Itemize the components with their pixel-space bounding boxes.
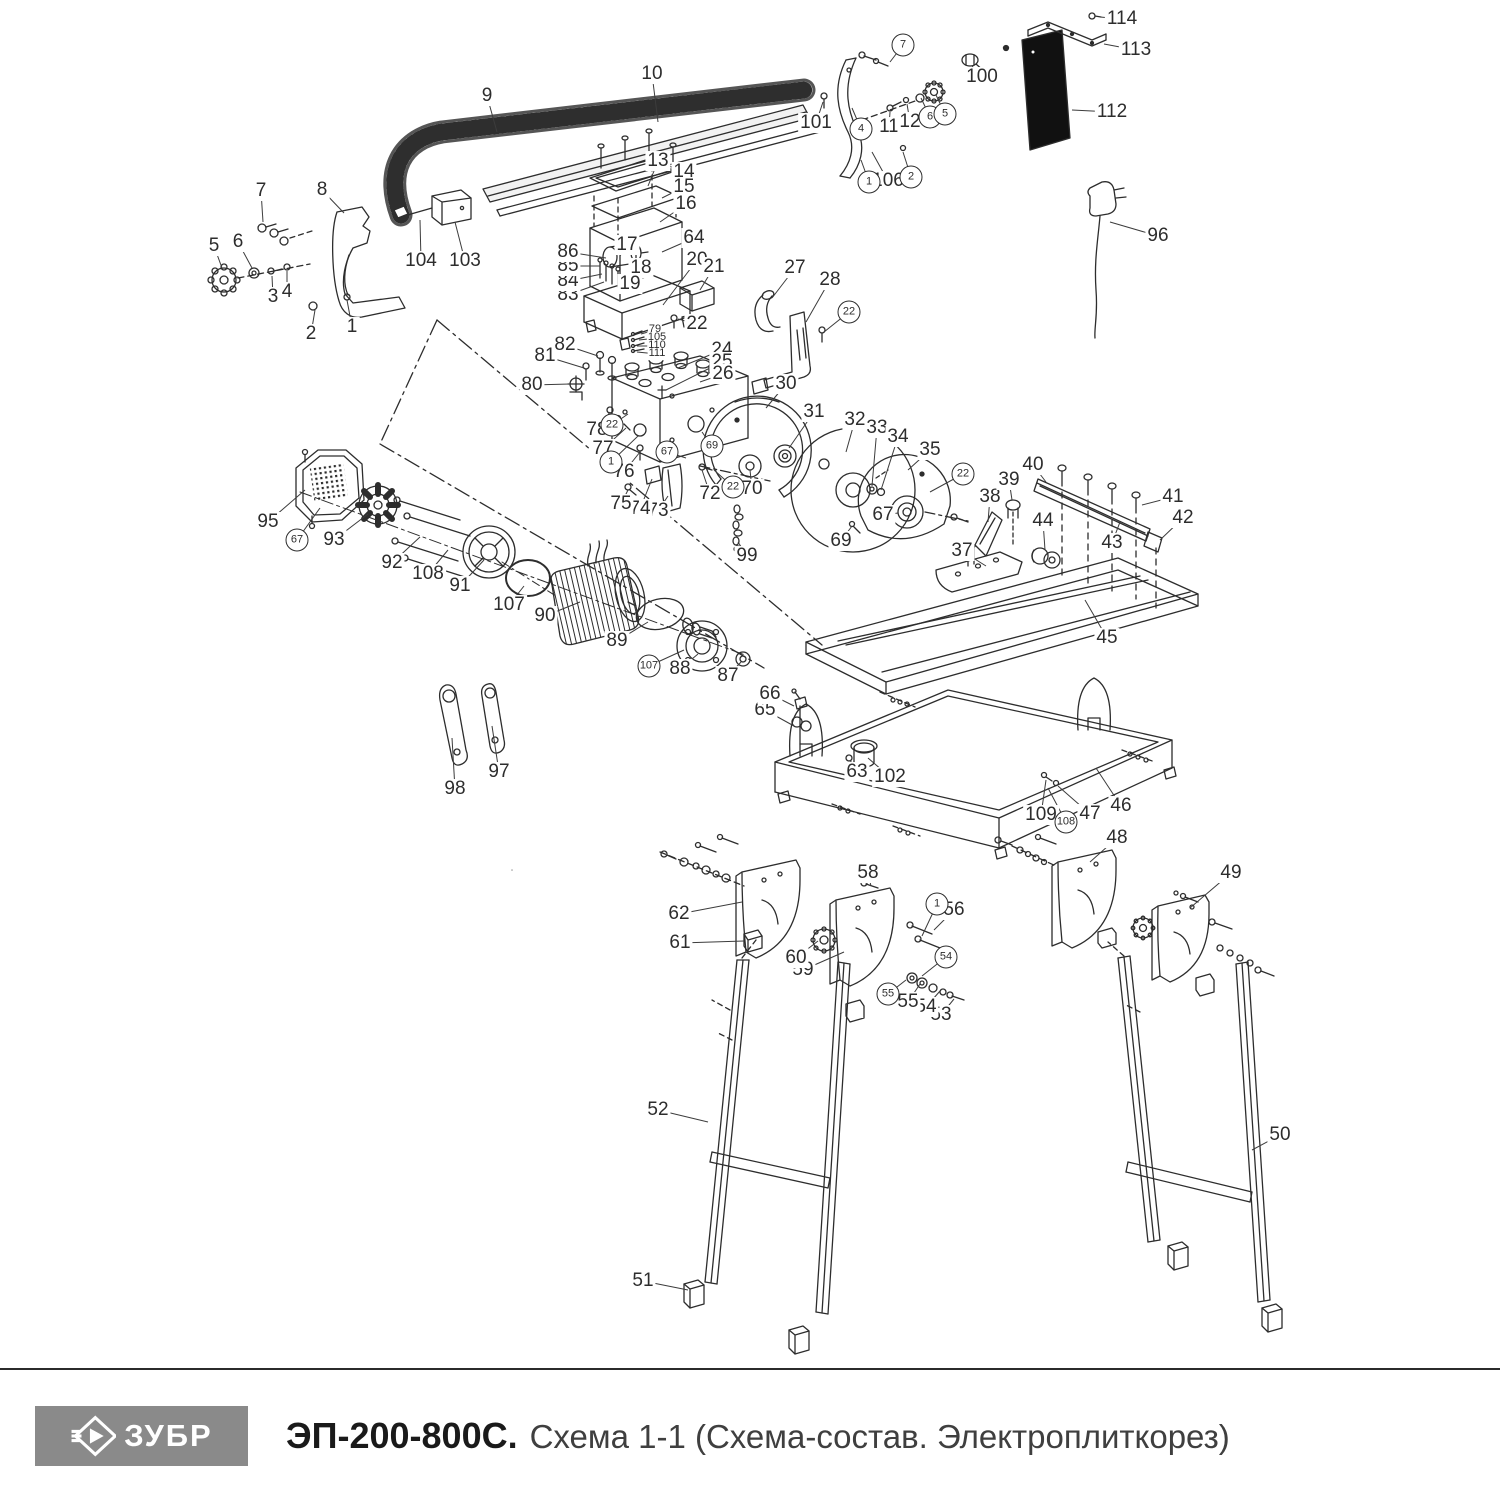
part-label-26: 26: [710, 364, 735, 384]
part-label-58: 58: [855, 863, 880, 883]
footer: ЗУБР ЭП-200-800С. Схема 1-1 (Схема-соста…: [0, 1368, 1500, 1500]
part-label-54: 54: [935, 946, 958, 969]
part-label-67: 67: [656, 441, 679, 464]
part-label-66: 66: [757, 684, 782, 704]
part-label-102: 102: [872, 767, 908, 787]
part-label-88: 88: [667, 659, 692, 679]
part-label-62: 62: [666, 904, 691, 924]
part-label-82: 82: [552, 335, 577, 355]
part-label-112: 112: [1095, 102, 1129, 122]
part-label-19: 19: [617, 274, 642, 294]
brand-arrow-icon: [70, 1413, 116, 1459]
part-label-108: 108: [410, 564, 446, 584]
part-label-89: 89: [604, 631, 629, 651]
part-label-22: 22: [684, 314, 709, 334]
part-label-90: 90: [532, 606, 557, 626]
part-label-69: 69: [701, 435, 724, 458]
part-label-107: 107: [491, 595, 527, 615]
model-title: ЭП-200-800С.: [286, 1415, 518, 1457]
part-label-1: 1: [600, 451, 623, 474]
part-label-17: 17: [614, 235, 639, 255]
part-label-113: 113: [1119, 40, 1153, 60]
part-label-40: 40: [1020, 455, 1045, 475]
part-label-44: 44: [1030, 511, 1055, 531]
part-label-86: 86: [555, 242, 580, 262]
part-label-6: 6: [231, 232, 246, 252]
part-label-46: 46: [1108, 796, 1133, 816]
part-label-51: 51: [630, 1271, 655, 1291]
part-label-100: 100: [964, 67, 1000, 87]
part-label-35: 35: [917, 440, 942, 460]
part-label-41: 41: [1160, 487, 1185, 507]
part-label-75: 75: [608, 494, 633, 514]
part-label-27: 27: [782, 258, 807, 278]
part-label-22: 22: [722, 476, 745, 499]
part-label-21: 21: [701, 257, 726, 277]
part-label-9: 9: [480, 86, 495, 106]
document-title: ЭП-200-800С. Схема 1-1 (Схема-состав. Эл…: [286, 1415, 1230, 1457]
part-label-55: 55: [877, 983, 900, 1006]
part-label-49: 49: [1218, 863, 1243, 883]
part-label-4: 4: [850, 118, 873, 141]
part-label-111: 111: [648, 348, 667, 360]
part-label-60: 60: [783, 948, 808, 968]
part-label-96: 96: [1145, 226, 1170, 246]
part-label-1: 1: [926, 893, 949, 916]
part-label-61: 61: [667, 933, 692, 953]
part-label-48: 48: [1104, 828, 1129, 848]
part-label-108: 108: [1055, 811, 1078, 834]
part-label-7: 7: [892, 34, 915, 57]
part-label-16: 16: [673, 194, 698, 214]
part-label-5: 5: [934, 103, 957, 126]
part-label-67: 67: [286, 529, 309, 552]
part-label-2: 2: [900, 166, 923, 189]
part-labels-layer: 1234567891011121314151617181920212224252…: [0, 0, 1500, 1368]
part-label-72: 72: [697, 484, 722, 504]
exploded-parts-diagram: 1234567891011121314151617181920212224252…: [0, 0, 1500, 1500]
part-label-93: 93: [321, 530, 346, 550]
part-label-47: 47: [1077, 804, 1102, 824]
part-label-10: 10: [639, 64, 664, 84]
part-label-22: 22: [838, 301, 861, 324]
part-label-103: 103: [447, 251, 483, 271]
part-label-8: 8: [315, 180, 330, 200]
part-label-98: 98: [442, 779, 467, 799]
part-label-97: 97: [486, 762, 511, 782]
part-label-31: 31: [801, 402, 826, 422]
part-label-13: 13: [645, 151, 670, 171]
part-label-5: 5: [207, 236, 222, 256]
part-label-87: 87: [715, 666, 740, 686]
part-label-104: 104: [403, 251, 439, 271]
part-label-67: 67: [870, 505, 895, 525]
part-label-22: 22: [601, 414, 624, 437]
part-label-95: 95: [255, 512, 280, 532]
part-label-92: 92: [379, 553, 404, 573]
schema-subtitle: Схема 1-1 (Схема-состав. Электроплиткоре…: [530, 1418, 1230, 1456]
part-label-50: 50: [1267, 1125, 1292, 1145]
part-label-45: 45: [1094, 628, 1119, 648]
part-label-114: 114: [1105, 9, 1139, 29]
part-label-99: 99: [734, 546, 759, 566]
part-label-4: 4: [280, 282, 295, 302]
part-label-101: 101: [798, 113, 834, 133]
part-label-91: 91: [447, 576, 472, 596]
part-label-3: 3: [266, 287, 281, 307]
part-label-28: 28: [817, 270, 842, 290]
brand-name: ЗУБР: [124, 1418, 212, 1454]
part-label-22: 22: [952, 463, 975, 486]
part-label-42: 42: [1170, 508, 1195, 528]
part-label-7: 7: [254, 181, 269, 201]
part-label-2: 2: [304, 324, 319, 344]
part-label-107: 107: [638, 655, 661, 678]
part-label-69: 69: [828, 531, 853, 551]
part-label-30: 30: [773, 374, 798, 394]
part-label-1: 1: [345, 317, 360, 337]
part-label-39: 39: [996, 470, 1021, 490]
part-label-52: 52: [645, 1100, 670, 1120]
part-label-80: 80: [519, 375, 544, 395]
part-label-1: 1: [858, 171, 881, 194]
part-label-64: 64: [681, 228, 706, 248]
part-label-109: 109: [1023, 805, 1059, 825]
brand-logo: ЗУБР: [35, 1406, 248, 1466]
part-label-43: 43: [1099, 533, 1124, 553]
part-label-63: 63: [844, 762, 869, 782]
part-label-37: 37: [949, 541, 974, 561]
part-label-34: 34: [885, 427, 910, 447]
